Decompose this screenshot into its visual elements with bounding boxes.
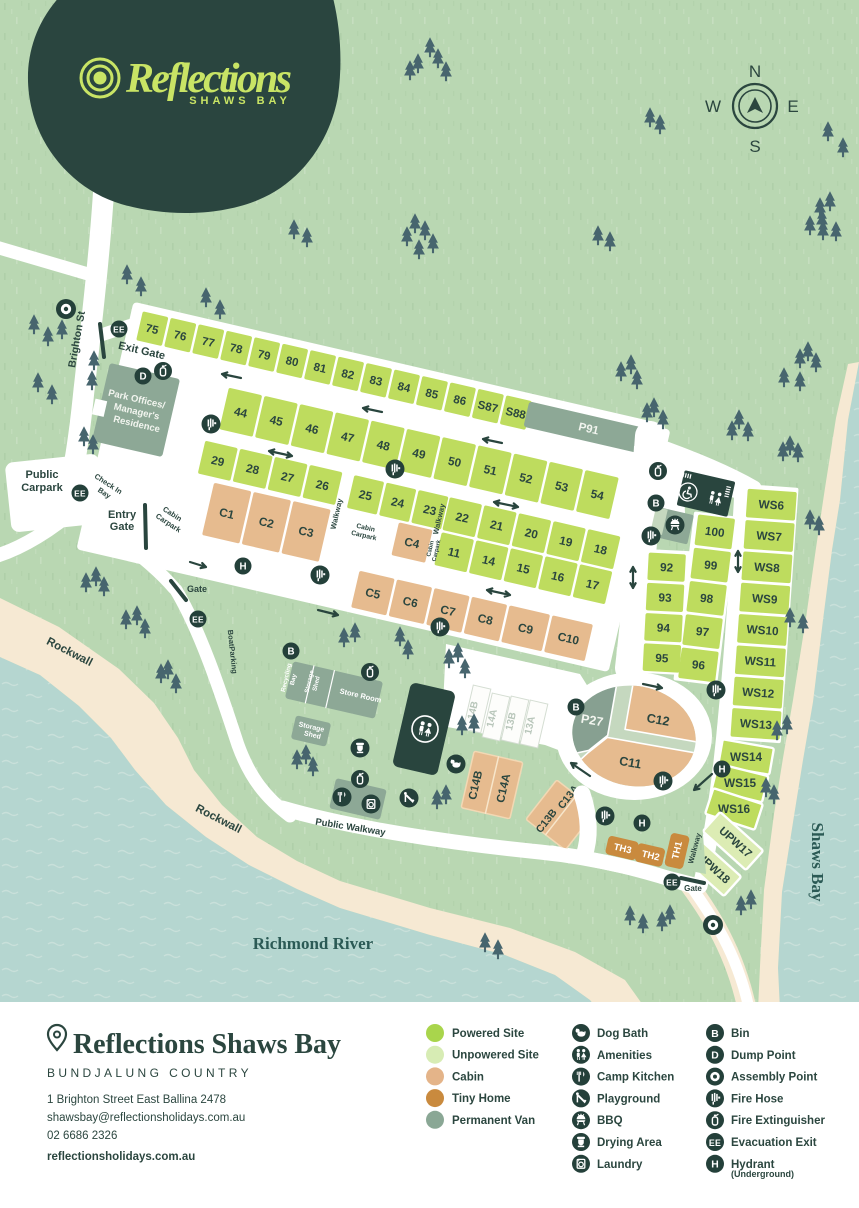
svg-text:WS7: WS7 <box>756 528 783 544</box>
svg-text:WS8: WS8 <box>754 560 781 576</box>
svg-text:(Underground): (Underground) <box>731 1169 794 1179</box>
svg-text:Tiny Home: Tiny Home <box>452 1093 511 1105</box>
svg-text:EE: EE <box>74 489 86 499</box>
svg-text:Permanent Van: Permanent Van <box>452 1115 535 1127</box>
svg-text:shawsbay@reflectionsholidays.c: shawsbay@reflectionsholidays.com.au <box>47 1112 245 1124</box>
svg-text:02 6686 2326: 02 6686 2326 <box>47 1130 117 1142</box>
svg-text:H: H <box>239 562 246 573</box>
svg-text:95: 95 <box>655 651 669 666</box>
svg-text:Gate: Gate <box>684 884 702 893</box>
svg-text:94: 94 <box>657 621 671 636</box>
svg-text:WS6: WS6 <box>758 497 785 513</box>
svg-text:93: 93 <box>658 590 672 605</box>
svg-text:WS13: WS13 <box>739 716 772 732</box>
svg-text:Shaws Bay: Shaws Bay <box>808 823 827 902</box>
svg-text:Carpark: Carpark <box>21 482 63 494</box>
svg-text:92: 92 <box>660 560 674 575</box>
svg-text:100: 100 <box>704 524 726 540</box>
svg-text:Laundry: Laundry <box>597 1159 643 1171</box>
svg-text:Fire Hose: Fire Hose <box>731 1093 783 1105</box>
svg-text:Cabin: Cabin <box>452 1071 484 1083</box>
svg-text:Public: Public <box>25 469 58 481</box>
svg-text:BUNDJALUNG COUNTRY: BUNDJALUNG COUNTRY <box>47 1066 252 1080</box>
svg-text:Powered Site: Powered Site <box>452 1028 524 1040</box>
svg-text:Entry: Entry <box>108 509 137 521</box>
svg-text:EE: EE <box>113 325 125 335</box>
svg-text:H: H <box>711 1160 718 1171</box>
svg-text:WS10: WS10 <box>746 622 779 638</box>
svg-text:SHAWS BAY: SHAWS BAY <box>189 95 291 107</box>
svg-text:EE: EE <box>192 615 204 625</box>
svg-text:Bin: Bin <box>731 1028 750 1040</box>
svg-text:B: B <box>711 1029 718 1040</box>
svg-text:EE: EE <box>709 1138 721 1148</box>
svg-text:96: 96 <box>691 657 706 673</box>
svg-text:B: B <box>287 647 294 658</box>
svg-text:WS15: WS15 <box>724 776 757 790</box>
svg-text:Evacuation Exit: Evacuation Exit <box>731 1137 817 1149</box>
svg-text:Unpowered Site: Unpowered Site <box>452 1050 539 1062</box>
svg-text:N: N <box>749 62 761 81</box>
svg-text:S: S <box>749 137 760 156</box>
svg-text:Richmond River: Richmond River <box>253 934 374 953</box>
svg-text:1 Brighton Street East Ballina: 1 Brighton Street East Ballina 2478 <box>47 1094 226 1106</box>
svg-text:Assembly Point: Assembly Point <box>731 1072 817 1084</box>
svg-text:Gate: Gate <box>187 584 207 594</box>
svg-text:E: E <box>787 97 798 116</box>
svg-text:WS14: WS14 <box>730 750 763 764</box>
svg-text:Dog Bath: Dog Bath <box>597 1028 648 1040</box>
svg-text:B: B <box>652 499 659 510</box>
svg-text:Fire Extinguisher: Fire Extinguisher <box>731 1115 825 1127</box>
svg-text:97: 97 <box>695 624 710 640</box>
svg-text:Playground: Playground <box>597 1093 660 1105</box>
svg-text:EE: EE <box>666 878 678 888</box>
svg-text:Dump Point: Dump Point <box>731 1050 796 1062</box>
svg-text:WS11: WS11 <box>744 653 777 669</box>
svg-text:reflectionsholidays.com.au: reflectionsholidays.com.au <box>47 1151 195 1163</box>
svg-text:Reflections Shaws Bay: Reflections Shaws Bay <box>73 1029 341 1060</box>
svg-text:D: D <box>139 372 146 383</box>
svg-text:B: B <box>572 703 579 714</box>
svg-text:99: 99 <box>703 557 718 573</box>
svg-text:Amenities: Amenities <box>597 1050 652 1062</box>
svg-text:98: 98 <box>699 591 714 607</box>
svg-text:H: H <box>718 765 725 776</box>
svg-text:Gate: Gate <box>110 521 134 533</box>
svg-text:WS9: WS9 <box>751 591 778 607</box>
svg-text:Camp Kitchen: Camp Kitchen <box>597 1072 674 1084</box>
svg-text:Drying Area: Drying Area <box>597 1137 662 1149</box>
svg-text:H: H <box>638 819 645 830</box>
svg-text:W: W <box>705 97 721 116</box>
svg-text:D: D <box>711 1051 719 1062</box>
svg-text:WS12: WS12 <box>742 685 775 701</box>
svg-text:BBQ: BBQ <box>597 1115 623 1127</box>
